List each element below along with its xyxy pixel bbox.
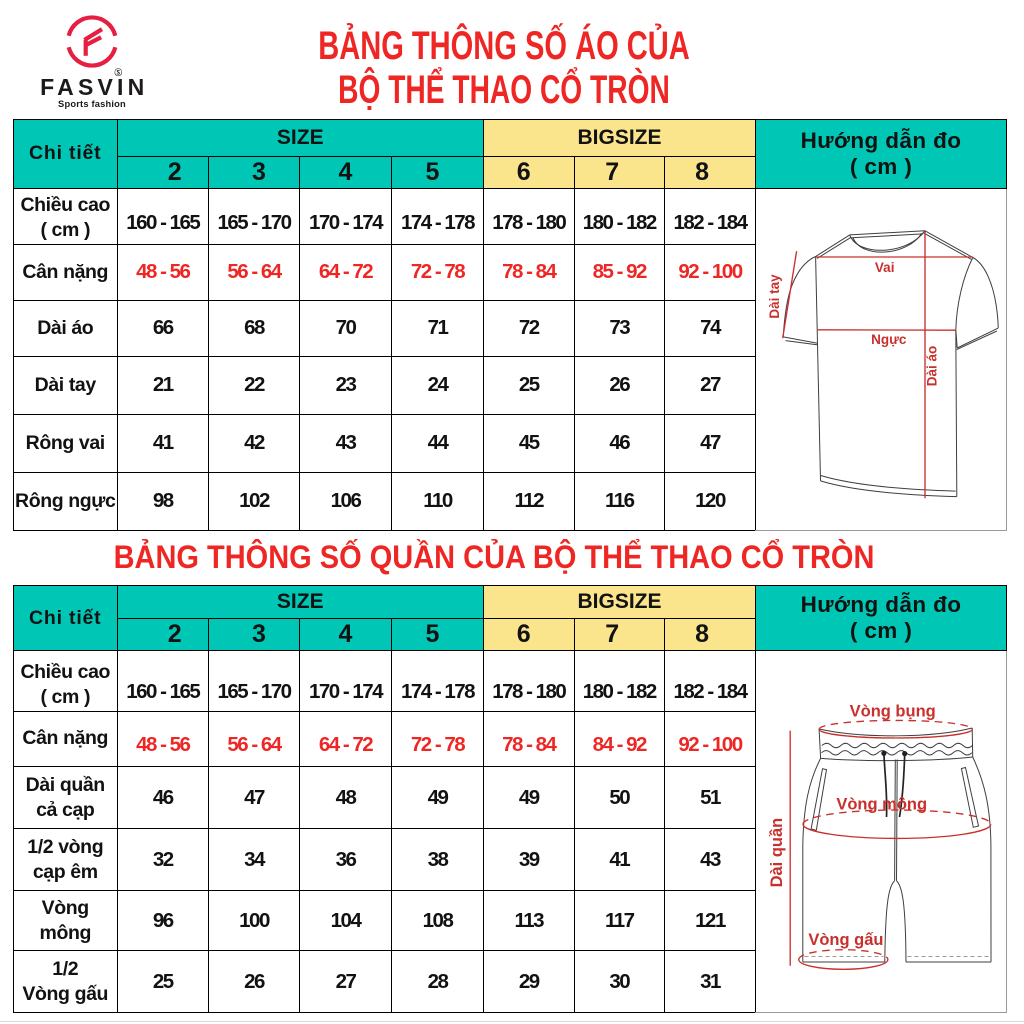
svg-text:Vòng gấu: Vòng gấu bbox=[808, 931, 883, 949]
svg-text:Vòng bụng: Vòng bụng bbox=[850, 703, 936, 721]
svg-text:Dài áo: Dài áo bbox=[924, 345, 939, 386]
svg-text:Vai: Vai bbox=[875, 259, 895, 274]
svg-text:Dài tay: Dài tay bbox=[767, 273, 782, 318]
svg-text:Vòng mông: Vòng mông bbox=[836, 796, 927, 814]
svg-text:Dài quần: Dài quần bbox=[768, 818, 786, 888]
svg-text:Ngực: Ngực bbox=[871, 331, 907, 346]
